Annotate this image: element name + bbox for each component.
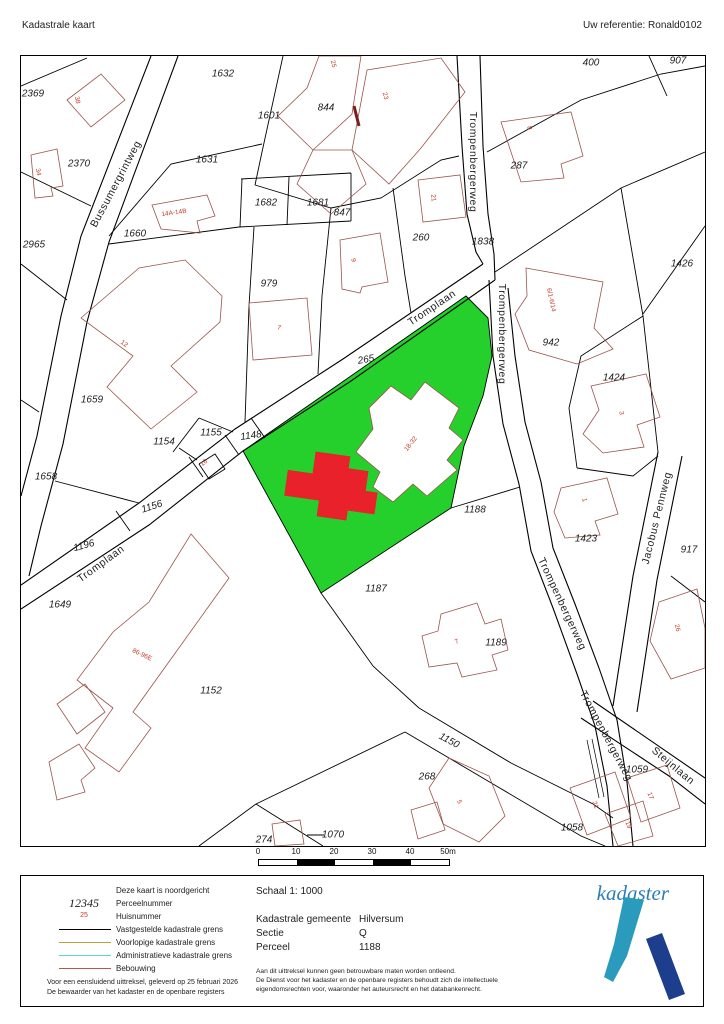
parcel-number: 1660	[124, 229, 147, 240]
house-number: 7	[276, 324, 282, 332]
perceel-value: 1188	[359, 942, 381, 953]
map-legend-panel: Deze kaart is noordgericht 12345 Perceel…	[20, 875, 704, 1007]
legend-line-voorlopige	[59, 942, 111, 943]
north-note: Deze kaart is noordgericht	[116, 886, 209, 895]
disclaimer-line-2: De Dienst voor het kadaster en de openba…	[256, 977, 498, 984]
parcel-number: 1423	[575, 534, 598, 545]
parcel-number: 1838	[472, 237, 495, 248]
house-number: 5	[455, 799, 463, 805]
house-number: 25	[329, 60, 338, 69]
legend-label-huisnummer: Huisnummer	[116, 912, 161, 921]
disclaimer-line-1: Aan dit uittreksel kunnen geen betrouwba…	[256, 968, 456, 975]
house-number: 3	[617, 411, 625, 416]
parcel-number: 1187	[365, 584, 387, 595]
street-name: Trompenbergerweg	[496, 284, 508, 385]
house-number: 26	[673, 624, 682, 633]
parcel-number-sample: 12345	[59, 896, 109, 911]
parcel-number: 979	[261, 279, 278, 290]
legend-line-vastgestelde	[59, 929, 111, 930]
kadaster-logo-icon	[601, 894, 701, 1004]
scale-tick: 30	[368, 847, 377, 856]
scale-tick: 0	[256, 847, 260, 856]
parcel-number: 1058	[561, 823, 584, 834]
parcel-number: 2369	[21, 89, 45, 100]
parcel-number: 2965	[22, 240, 46, 251]
legend-label-bebouwing: Bebouwing	[116, 964, 156, 973]
parcel-number: 1649	[49, 600, 72, 611]
parcel-number: 260	[412, 233, 430, 244]
sectie-label: Sectie	[256, 928, 284, 939]
page-title: Kadastrale kaart	[22, 20, 95, 31]
parcel-number: 844	[318, 103, 335, 114]
parcel-number: 1631	[196, 155, 218, 166]
scale-text: Schaal 1: 1000	[256, 886, 323, 897]
road-edge	[613, 452, 658, 706]
parcel-number: 1070	[322, 830, 345, 841]
legend-label-voorlopige: Voorlopige kadastrale grens	[116, 938, 215, 947]
house-number: 17	[645, 791, 654, 801]
parcel-number: 1059	[626, 765, 649, 776]
scale-bar-strip	[258, 859, 450, 866]
parcel-number: 1632	[212, 69, 235, 80]
disclaimer-line-3: eigendomsrechten voor, waaronder het aut…	[256, 986, 482, 993]
house-number: 12	[119, 339, 129, 349]
street-name: Trompenbergerweg	[467, 112, 479, 213]
parcel-number: 847	[334, 208, 351, 219]
house-number: 21	[590, 800, 599, 810]
house-number-sample: 25	[59, 912, 109, 919]
parcel-number: 1424	[603, 373, 626, 384]
legend-line-administratieve	[59, 955, 111, 956]
road-edge	[29, 56, 178, 576]
parcel-number: 274	[255, 835, 273, 846]
parcel-number: 1681	[307, 198, 329, 209]
parcel-number: 1426	[671, 259, 694, 270]
parcel-number: 1189	[485, 638, 507, 649]
kadaster-extract-page: Kadastrale kaart Uw referentie: Ronald01…	[0, 0, 724, 1024]
registrar-note: De bewaarder van het kadaster en de open…	[47, 989, 224, 996]
issue-note: Voor een eensluidend uittreksel, gelever…	[47, 979, 238, 986]
house-number: 9	[349, 258, 356, 263]
house-number: 14A-14B	[161, 208, 187, 218]
parcel-number: 1150	[437, 731, 462, 751]
parcel-number: 1156	[140, 498, 164, 515]
house-number: 86-96E	[131, 647, 154, 662]
house-number: 1	[580, 498, 588, 503]
parcel-number: 907	[670, 56, 687, 67]
parcel-number: 287	[510, 161, 528, 172]
road-edge	[21, 56, 151, 496]
legend-label-perceelnummer: Perceelnummer	[116, 899, 172, 908]
legend-label-administratieve: Administratieve kadastrale grens	[116, 951, 232, 960]
house-number: 21	[429, 194, 437, 202]
scale-tick: 10	[292, 847, 301, 856]
gemeente-value: Hilversum	[359, 914, 403, 925]
legend-line-bebouwing	[59, 968, 111, 969]
parcel-number: 1152	[200, 686, 222, 697]
scale-tick: 50m	[440, 847, 456, 856]
parcel-number: 1155	[200, 428, 222, 439]
map-canvas: BussumergrintwegTrompenbergerwegTromplaa…	[21, 56, 705, 846]
house-number: 6/1-6/14	[545, 288, 557, 313]
house-number: 23	[381, 92, 390, 101]
parcel-number: 1154	[153, 437, 175, 448]
legend-label-vastgestelde: Vastgestelde kadastrale grens	[116, 925, 223, 934]
scale-bar: 01020304050m	[248, 847, 478, 871]
house-number: 7	[454, 638, 461, 646]
gemeente-label: Kadastrale gemeente	[256, 914, 351, 925]
parcel-number: 1659	[81, 395, 104, 406]
parcel-number: 1682	[255, 198, 278, 209]
sectie-value: Q	[359, 928, 367, 939]
scale-tick: 20	[330, 847, 339, 856]
parcel-number: 942	[543, 338, 560, 349]
house-number: 38	[73, 96, 81, 105]
parcel-number: 1601	[258, 111, 280, 122]
street-name: Bussumergrintweg	[88, 139, 144, 230]
house-number: 8	[525, 126, 533, 131]
parcel-number: 400	[583, 58, 600, 69]
parcel-number: 2370	[67, 159, 91, 170]
perceel-label: Perceel	[256, 942, 290, 953]
parcel-number: 1658	[35, 472, 58, 483]
parcel-number: 1188	[464, 505, 486, 516]
street-name: Steijnlaan	[649, 745, 697, 788]
parcel-number: 1196	[72, 538, 96, 554]
scale-tick: 40	[406, 847, 415, 856]
parcel-number: 917	[681, 545, 698, 556]
house-number: 34	[34, 168, 42, 177]
cadastral-map: BussumergrintwegTrompenbergerwegTromplaa…	[20, 55, 706, 847]
reference-label: Uw referentie: Ronald0102	[583, 20, 702, 31]
parcel-number: 268	[418, 772, 436, 783]
